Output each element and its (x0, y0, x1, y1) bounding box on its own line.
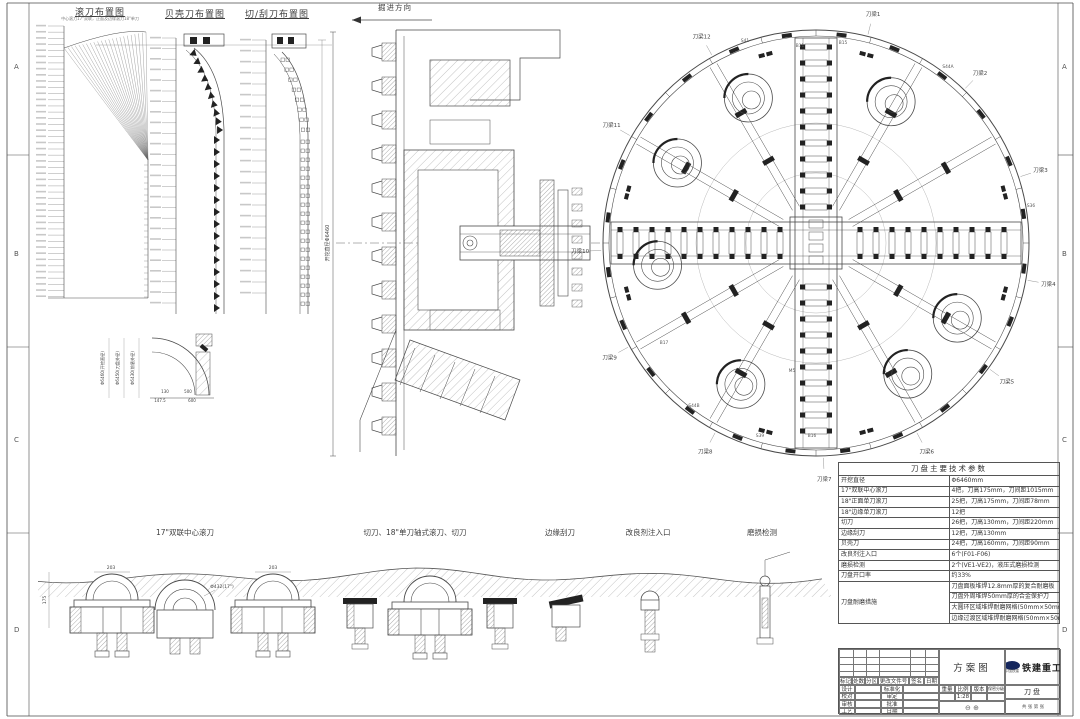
sig-design: 设计 (839, 685, 855, 693)
param-row: 贝壳刀24把，刀高160mm，刀间距90mm (839, 539, 1060, 550)
param-row: 开挖直径Φ6460mm (839, 476, 1060, 487)
svg-text:Φ432(17"): Φ432(17") (210, 584, 234, 590)
meta-version: 版本 (971, 685, 987, 693)
zone-letter: C (1062, 436, 1067, 444)
version-value (971, 693, 987, 701)
single-cutter-label: 切刀、18"单刀轴式滚刀、切刀 (335, 527, 495, 538)
meta-scale: 比例 (955, 685, 971, 693)
cutterhead-section-view: 开挖直径Φ6460 (324, 30, 600, 456)
sig-blank (903, 685, 939, 693)
svg-text:203: 203 (107, 565, 116, 571)
sig-blank (855, 685, 881, 693)
param-row: 边缘刮刀12把，刀高130mm (839, 528, 1060, 539)
parameters-table-title: 刀盘主要技术参数 (839, 463, 1060, 476)
meta-secrecy: 保密分级 (987, 685, 1005, 693)
svg-text:刀梁7: 刀梁7 (817, 475, 832, 483)
parameters-table-body: 开挖直径Φ6460mm17"双联中心滚刀4把，刀高175mm，刀间距1015mm… (839, 476, 1060, 624)
sig-blank (855, 693, 881, 701)
sig-blank (903, 693, 939, 701)
svg-text:M5: M5 (789, 368, 796, 374)
wear-measure-row: 刀盘耐磨措施刀盘面板堆焊12.8mm厚的复合耐磨板 (839, 581, 1060, 592)
cut-scraper-layout-title: 切/刮刀布置图 (234, 7, 320, 20)
svg-text:130: 130 (161, 389, 169, 394)
projection-symbol: ⊖ ⊕ (939, 701, 1005, 715)
sig-blank (855, 708, 881, 716)
header-change-file: 更改文件号 (878, 677, 909, 685)
sig-blank (903, 708, 939, 716)
sig-blank (903, 700, 939, 708)
svg-text:刀梁6: 刀梁6 (920, 447, 935, 455)
shell-cutter-layout-diagram (150, 34, 224, 314)
zone-letter: B (1062, 250, 1067, 258)
zone-letter: A (1062, 63, 1067, 71)
svg-text:Φ6430(前盾外径): Φ6430(前盾外径) (129, 351, 136, 385)
scale-value: 1:28 (955, 693, 971, 701)
svg-text:刀梁11: 刀梁11 (603, 121, 621, 129)
excavation-direction-label: 掘进方向 (355, 2, 435, 13)
wear-detection-label: 磨损检测 (702, 527, 822, 538)
weight-value (939, 693, 955, 701)
param-row: 切刀26把，刀高130mm，刀间距220mm (839, 518, 1060, 529)
title-block: 标记 处数 分区 更改文件号 签名 日期 设计 校对 审核 工艺 标准化 审定 … (838, 648, 1060, 714)
sig-date: 日期 (881, 708, 903, 716)
svg-text:147.5: 147.5 (154, 398, 166, 403)
svg-text:B15: B15 (839, 40, 848, 46)
zone-letter: D (1062, 626, 1067, 634)
part-name: 刀盘 (1005, 685, 1061, 699)
rim-detail-view: Φ6460(开挖直径)Φ6450(刀盘外径)Φ6430(前盾外径)1305001… (99, 334, 214, 403)
sig-check: 校对 (839, 693, 855, 701)
meta-weight: 重量 (939, 685, 955, 693)
param-row: 18"正面单刀滚刀25把，刀高175mm，刀间距78mm (839, 497, 1060, 508)
drawing-type: 方案图 (939, 649, 1005, 685)
header-zone: 分区 (865, 677, 878, 685)
svg-text:刀梁5: 刀梁5 (1000, 378, 1015, 386)
param-row: 刀盘开口率约33% (839, 571, 1060, 582)
svg-text:开挖直径Φ6460: 开挖直径Φ6460 (324, 225, 331, 262)
svg-text:600: 600 (188, 398, 196, 403)
param-row: 18"边缘单刀滚刀12把 (839, 507, 1060, 518)
header-count: 处数 (852, 677, 865, 685)
roller-cutter-layout-subtitle: 中心滚刀17"双联，正面及边缘滚刀18"单刀 (40, 16, 160, 22)
sig-process: 工艺 (839, 708, 855, 716)
cutterhead-parameters-table: 刀盘主要技术参数 开挖直径Φ6460mm17"双联中心滚刀4把，刀高175mm，… (838, 462, 1060, 624)
cut-scraper-layout-diagram (240, 34, 326, 314)
zone-letter: C (14, 436, 19, 444)
svg-text:刀梁12: 刀梁12 (693, 33, 711, 41)
svg-text:Φ6460(开挖直径): Φ6460(开挖直径) (99, 351, 106, 385)
company-name: 铁建重工 (1022, 661, 1061, 674)
svg-text:175: 175 (42, 596, 48, 605)
svg-text:刀梁4: 刀梁4 (1041, 280, 1056, 288)
zone-letter: B (14, 250, 19, 258)
svg-text:S39: S39 (756, 433, 764, 439)
company-logo-cell: 中国铁建 铁建重工 (1005, 649, 1061, 685)
svg-text:500: 500 (184, 389, 192, 394)
roller-cutter-layout-diagram (36, 25, 332, 298)
injection-port-label: 改良剂注入口 (588, 527, 708, 538)
header-date: 日期 (924, 677, 939, 685)
secrecy-value (987, 693, 1005, 701)
svg-text:Φ6450(刀盘外径): Φ6450(刀盘外径) (114, 351, 121, 385)
sig-approve: 批准 (881, 700, 903, 708)
svg-text:刀梁9: 刀梁9 (602, 353, 617, 361)
svg-text:B11: B11 (796, 43, 805, 49)
svg-text:刀梁1: 刀梁1 (866, 10, 881, 18)
direction-arrow (352, 17, 432, 24)
shell-cutter-layout-title: 贝壳刀布置图 (152, 7, 238, 20)
svg-text:B16: B16 (808, 433, 817, 439)
sig-review: 审核 (839, 700, 855, 708)
cutterhead-front-view (603, 30, 1029, 456)
drawing-sheet: 开挖直径Φ6460Φ6460(开挖直径)Φ6450(刀盘外径)Φ6430(前盾外… (0, 0, 1080, 719)
svg-text:刀梁3: 刀梁3 (1033, 166, 1048, 174)
sig-approve-review: 审定 (881, 693, 903, 701)
param-row: 磨损检测2个(VE1-VE2)，液压式磨损检测 (839, 560, 1060, 571)
svg-text:S36: S36 (1027, 203, 1035, 209)
zone-letter: D (14, 626, 19, 634)
svg-text:203: 203 (269, 565, 278, 571)
svg-text:S44B: S44B (688, 403, 699, 409)
svg-text:刀梁2: 刀梁2 (973, 69, 988, 77)
header-mark: 标记 (839, 677, 852, 685)
header-signature: 签名 (909, 677, 924, 685)
sheet-count: 共 张 第 张 (1005, 699, 1061, 715)
svg-text:刀梁10: 刀梁10 (571, 247, 589, 255)
zone-letter: A (14, 63, 19, 71)
param-row: 17"双联中心滚刀4把，刀高175mm，刀间距1015mm (839, 486, 1060, 497)
sig-blank (855, 700, 881, 708)
param-row: 改良剂注入口6个(F01-F06) (839, 550, 1060, 561)
svg-text:刀梁8: 刀梁8 (698, 447, 713, 455)
revision-grid (839, 649, 939, 677)
svg-text:S41: S41 (741, 38, 749, 44)
svg-text:B17: B17 (660, 340, 669, 346)
company-sub-label: 中国铁建 (1005, 670, 1019, 674)
svg-text:S44A: S44A (942, 64, 953, 70)
sig-standardize: 标准化 (881, 685, 903, 693)
center-cutter-label: 17"双联中心滚刀 (105, 527, 265, 538)
